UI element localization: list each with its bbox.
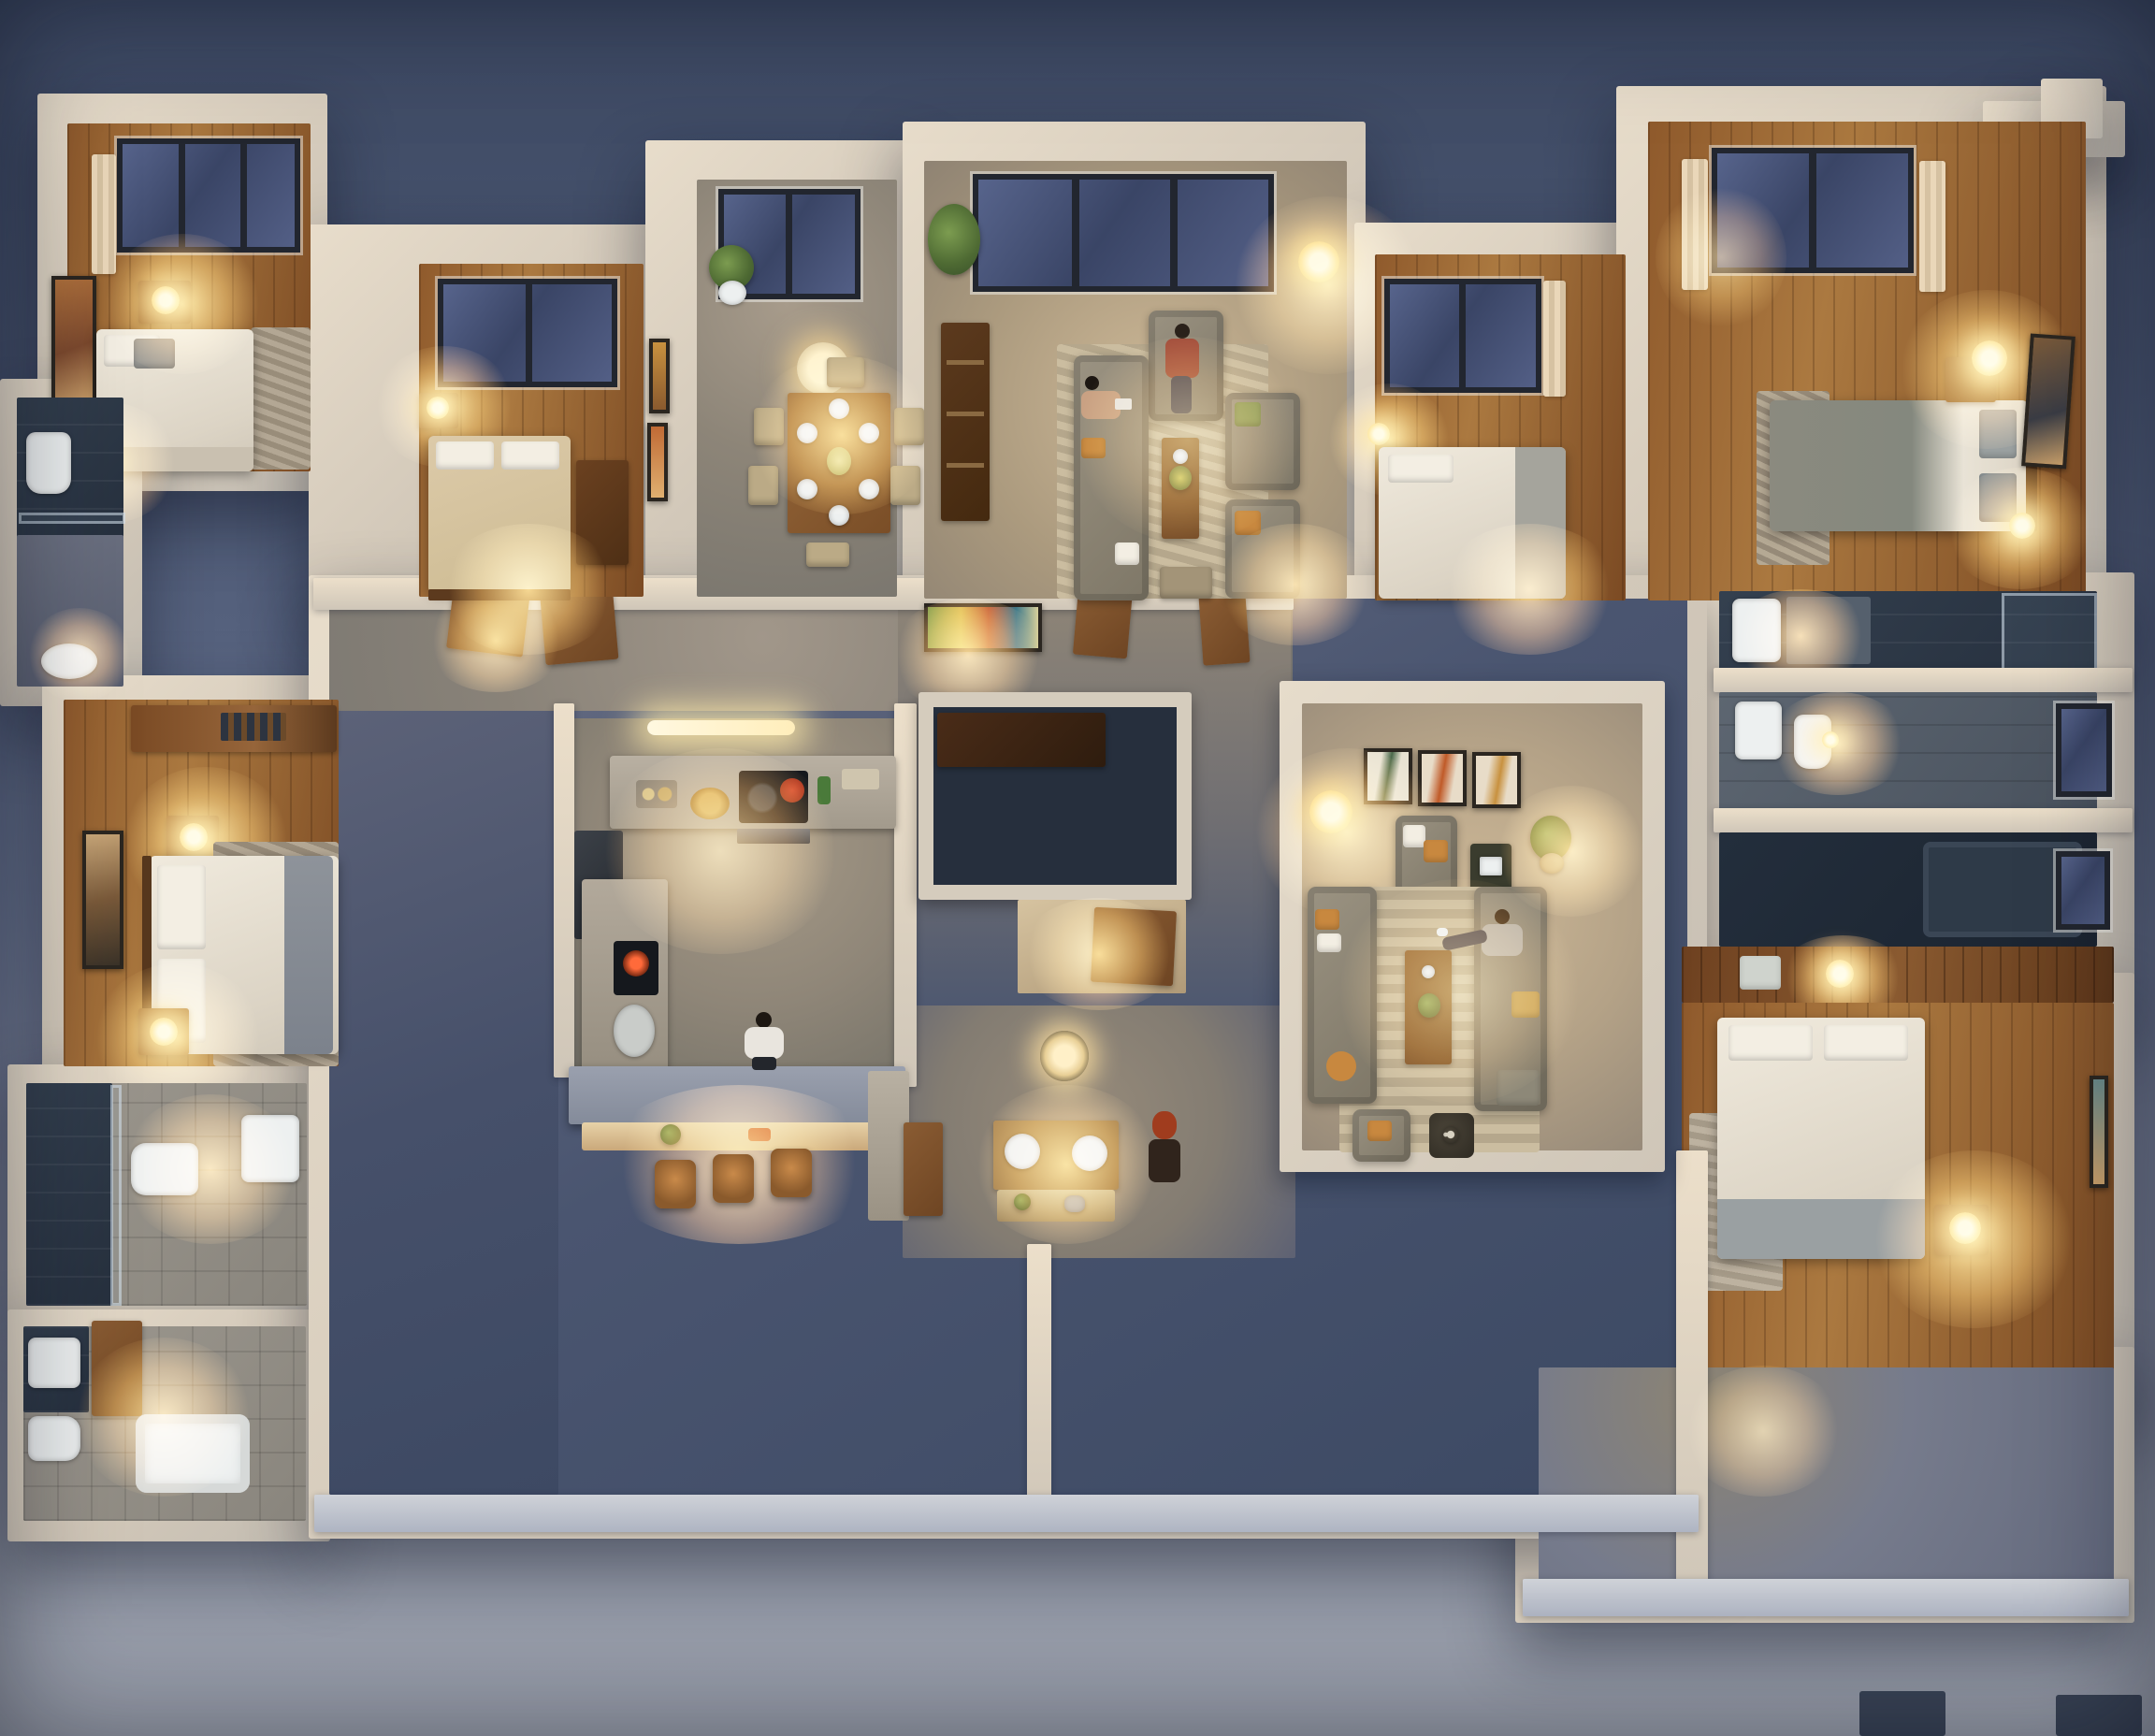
- dining-chair: [890, 466, 920, 505]
- pouf-pattern: [1442, 1126, 1459, 1143]
- bedroom3-window: [1384, 279, 1541, 393]
- kitchen-bread-board: [690, 788, 730, 819]
- bedroom2-lamp: [427, 397, 449, 419]
- bedroom4-sphere-lamp: [1972, 340, 2007, 376]
- closetR-linens: [1740, 956, 1781, 990]
- bed-blanket-gray: [1717, 1199, 1925, 1259]
- living1-armchair-right-1: [1225, 393, 1300, 490]
- breakfast-bar-top: [569, 1066, 905, 1124]
- coffee-table-plant: [1418, 993, 1440, 1018]
- armchair-pillow: [1403, 825, 1425, 847]
- bedroom4-curtain-left: [1682, 159, 1708, 290]
- closet-cabinet: [937, 713, 1106, 767]
- bedroomM-wall-art: [82, 831, 123, 969]
- bedroom3-curtain: [1543, 281, 1566, 397]
- living1-floor-lamp: [1298, 241, 1339, 282]
- person-torso: [745, 1027, 784, 1059]
- wardrobe-books: [221, 713, 286, 741]
- bedroom2-wardrobe: [576, 460, 629, 565]
- bar-red-dish: [748, 1128, 771, 1141]
- bedroomM-lamp-bottom: [150, 1018, 178, 1046]
- dining-plant-pot: [718, 281, 746, 305]
- person-woman-armchair: [1160, 322, 1207, 415]
- dinner-plate: [859, 423, 879, 443]
- open-area-dark-left: [329, 711, 558, 1495]
- person-man-sofa: [1077, 370, 1143, 436]
- scene-stage: [0, 0, 2155, 1736]
- side-table-cards: [1480, 857, 1502, 875]
- bed-frame-foot: [428, 589, 571, 600]
- bookshelf-shelf: [947, 463, 984, 468]
- sofa-pillow: [1115, 542, 1139, 565]
- bath0-shower-glass: [19, 513, 125, 524]
- person-torso: [1482, 924, 1523, 956]
- armchair-pillow-orange: [1367, 1121, 1392, 1141]
- person-torso: [1165, 339, 1199, 378]
- living2-sofa-left: [1308, 887, 1377, 1104]
- person-man-kitchen: [739, 1012, 791, 1070]
- bathC-sink: [28, 1338, 80, 1388]
- living2-plant-pot: [1540, 853, 1564, 874]
- living1-stool: [1160, 567, 1212, 599]
- bedroom1-wall-art: [51, 276, 96, 407]
- bedroom1-window: [117, 138, 300, 253]
- exterior-pier: [2056, 1695, 2142, 1736]
- bathR-divider-2: [1714, 808, 2133, 832]
- vanity-basin: [1072, 1136, 1107, 1171]
- bathR1-basin: [1732, 599, 1781, 662]
- dining-table: [788, 393, 890, 533]
- bookshelf-shelf: [947, 412, 984, 416]
- island-cooktop: [614, 941, 658, 995]
- person-head: [1152, 1111, 1177, 1139]
- armchair-pillow-green: [1235, 402, 1261, 427]
- person-head: [1495, 909, 1510, 924]
- window-mullion: [179, 144, 185, 247]
- window-mullion: [240, 144, 247, 247]
- bedroomM-wardrobe: [131, 705, 337, 752]
- armchair-pillow-orange: [1424, 840, 1448, 862]
- vanity-side-cabinet: [904, 1122, 943, 1216]
- bed-blanket-gray: [284, 856, 333, 1054]
- kitchen-island-counter: [582, 879, 668, 1076]
- bathC-toilet: [28, 1416, 80, 1461]
- bed-pillow-gray: [134, 339, 175, 369]
- armchair-pillow-orange: [1235, 511, 1261, 535]
- living2-pouf: [1429, 1113, 1474, 1158]
- coffee-table-vase: [1422, 965, 1435, 978]
- dining-chair: [748, 466, 778, 505]
- bedroom5-wall-art: [2090, 1076, 2108, 1188]
- hall-door-4: [1198, 593, 1250, 665]
- living2-side-table: [1470, 844, 1511, 892]
- cooktop-red-pot: [780, 778, 804, 803]
- bedroom2-window: [438, 279, 617, 387]
- living2-coffee-table: [1405, 950, 1452, 1064]
- bed-pillow: [157, 865, 206, 949]
- window-mullion: [526, 284, 532, 382]
- living2-armchair-bottom: [1352, 1109, 1410, 1162]
- window-mullion: [1170, 180, 1178, 286]
- bedroom5-lamp: [1949, 1212, 1981, 1244]
- bath0-toilet: [26, 432, 71, 494]
- dining-chair: [894, 408, 924, 445]
- closet-room: [918, 692, 1192, 900]
- dining-chair: [827, 357, 864, 387]
- sofa-pillow-orange: [1315, 909, 1339, 930]
- bed-pillow-gray: [1979, 410, 2017, 458]
- bedroom3-lamp: [1367, 423, 1390, 445]
- dining-west-art-2: [647, 423, 668, 501]
- bedroom3-bed: [1379, 447, 1566, 599]
- bed-blanket-gray: [1515, 447, 1566, 599]
- vanity-counter: [993, 1121, 1119, 1190]
- island-sink: [614, 1005, 655, 1057]
- open-area-divider-wall: [1027, 1244, 1051, 1525]
- dining-chair: [754, 408, 784, 445]
- window-mullion: [1459, 284, 1466, 387]
- living1-coffee-table: [1162, 438, 1199, 539]
- vanity-shelf: [997, 1190, 1115, 1222]
- person-redhead-vanity: [1139, 1109, 1188, 1203]
- sofa-pillow-amber: [1511, 991, 1540, 1018]
- bedroom1-table-lamp: [152, 286, 180, 314]
- bathR2-bulb: [1822, 731, 1839, 748]
- vanity-ring-light: [1040, 1031, 1089, 1081]
- bedroom4-foot-lamp: [2009, 513, 2035, 539]
- window-mullion: [1072, 180, 1079, 286]
- sofa-round-pillow: [1326, 1051, 1356, 1081]
- bath0-sink: [41, 644, 97, 679]
- bathB-shower-glass: [110, 1085, 122, 1306]
- kitchen-jars: [636, 780, 677, 808]
- dining-bench: [806, 542, 849, 567]
- bar-stool: [713, 1154, 754, 1203]
- person-legs: [1171, 376, 1192, 413]
- bathR1-counter: [1786, 597, 1871, 664]
- dinner-plate: [797, 479, 817, 499]
- flower-vase: [1173, 449, 1188, 464]
- person-woman-sofa: [1437, 905, 1540, 971]
- person-torso: [1149, 1139, 1180, 1182]
- island-burner-glow: [623, 950, 649, 976]
- kitchen-green-bottle: [817, 776, 831, 804]
- dinner-plate: [829, 398, 849, 419]
- closetR-lamp: [1826, 960, 1854, 988]
- bedroom4-curtain-right: [1919, 161, 1945, 292]
- bathB-shower-floor: [26, 1083, 112, 1306]
- bedroom4-window: [1712, 148, 1914, 273]
- bed-pillow: [436, 441, 494, 470]
- bedroom5-bed: [1717, 1018, 1925, 1259]
- cooktop-pan: [746, 782, 778, 814]
- person-head: [756, 1012, 772, 1028]
- table-flowers: [1169, 466, 1192, 490]
- kitchen-west-wall: [554, 703, 574, 1078]
- person-shoe: [1437, 928, 1448, 936]
- bathR3-window: [2056, 851, 2110, 930]
- dinner-plate: [859, 479, 879, 499]
- bar-stool: [655, 1160, 696, 1208]
- bedroom2-bed: [428, 436, 571, 593]
- kitchen-towel: [842, 769, 879, 789]
- shelf-plant: [1014, 1193, 1031, 1210]
- kitchen-tube-light: [647, 720, 795, 735]
- hallway-painting: [924, 603, 1042, 652]
- bedroom1-curtain: [92, 154, 116, 274]
- living2-triptych-3: [1472, 752, 1521, 808]
- bedroom4-bed: [1770, 400, 2028, 531]
- bed-pillow: [501, 441, 559, 470]
- bathB-sink: [241, 1115, 299, 1182]
- bathC-bathtub: [136, 1414, 250, 1493]
- sofa-pillow: [1317, 933, 1341, 952]
- kitchen-counter-top: [610, 756, 896, 829]
- vanity-basin: [1005, 1134, 1040, 1169]
- bathR2-window: [2056, 703, 2112, 797]
- window-mullion: [1809, 153, 1816, 268]
- bedroom4-wall-art: [2021, 333, 2075, 469]
- sofa-pillow-orange: [1081, 438, 1106, 458]
- bed-pillow: [1388, 455, 1454, 483]
- living1-armchair-right-2: [1225, 499, 1300, 599]
- person-head: [1085, 376, 1099, 390]
- bathR1-shower-glass: [2002, 593, 2097, 673]
- living2-triptych-2: [1418, 750, 1467, 806]
- bathB-toilet: [131, 1143, 198, 1195]
- kitchen-cooktop: [739, 771, 808, 823]
- kitchen-east-wall: [894, 703, 917, 1087]
- living2-floor-lamp: [1309, 790, 1352, 833]
- bathR2-sink: [1735, 702, 1782, 759]
- bathR-divider-1: [1714, 668, 2133, 692]
- sofa-pillow-stack: [1497, 1070, 1540, 1106]
- living1-window: [973, 174, 1274, 292]
- dinner-plate: [829, 505, 849, 526]
- south-outer-wall: [314, 1495, 1699, 1532]
- bathC-wood-mat: [92, 1321, 142, 1416]
- living2-triptych-1: [1364, 748, 1412, 804]
- terrace-right-floor: [1539, 1367, 2114, 1581]
- bedroomM-lamp-top: [180, 823, 208, 851]
- terrace-south-wall: [1523, 1579, 2129, 1616]
- bar-stool: [771, 1149, 812, 1197]
- bookshelf-shelf: [947, 360, 984, 365]
- person-head: [1175, 324, 1190, 339]
- person-shorts: [752, 1057, 776, 1070]
- dinner-plate: [797, 423, 817, 443]
- bed-pillow: [1824, 1025, 1908, 1061]
- shelf-jar: [1064, 1195, 1085, 1212]
- bar-plant: [660, 1124, 681, 1145]
- living1-palm: [928, 204, 980, 275]
- living1-bookshelf: [941, 323, 990, 521]
- kitchen-oven-front: [737, 829, 810, 844]
- dining-centerpiece: [827, 447, 851, 475]
- bedroom1-rug: [251, 327, 311, 470]
- breakfast-bar-ledge: [582, 1122, 885, 1150]
- bed-pillow-gray: [1979, 473, 2017, 522]
- alcove-door: [1091, 907, 1177, 986]
- person-book: [1115, 398, 1132, 410]
- bed-pillow: [1728, 1025, 1813, 1061]
- dining-west-art-1: [649, 339, 670, 413]
- window-mullion: [786, 195, 792, 294]
- exterior-pier: [1859, 1691, 1945, 1736]
